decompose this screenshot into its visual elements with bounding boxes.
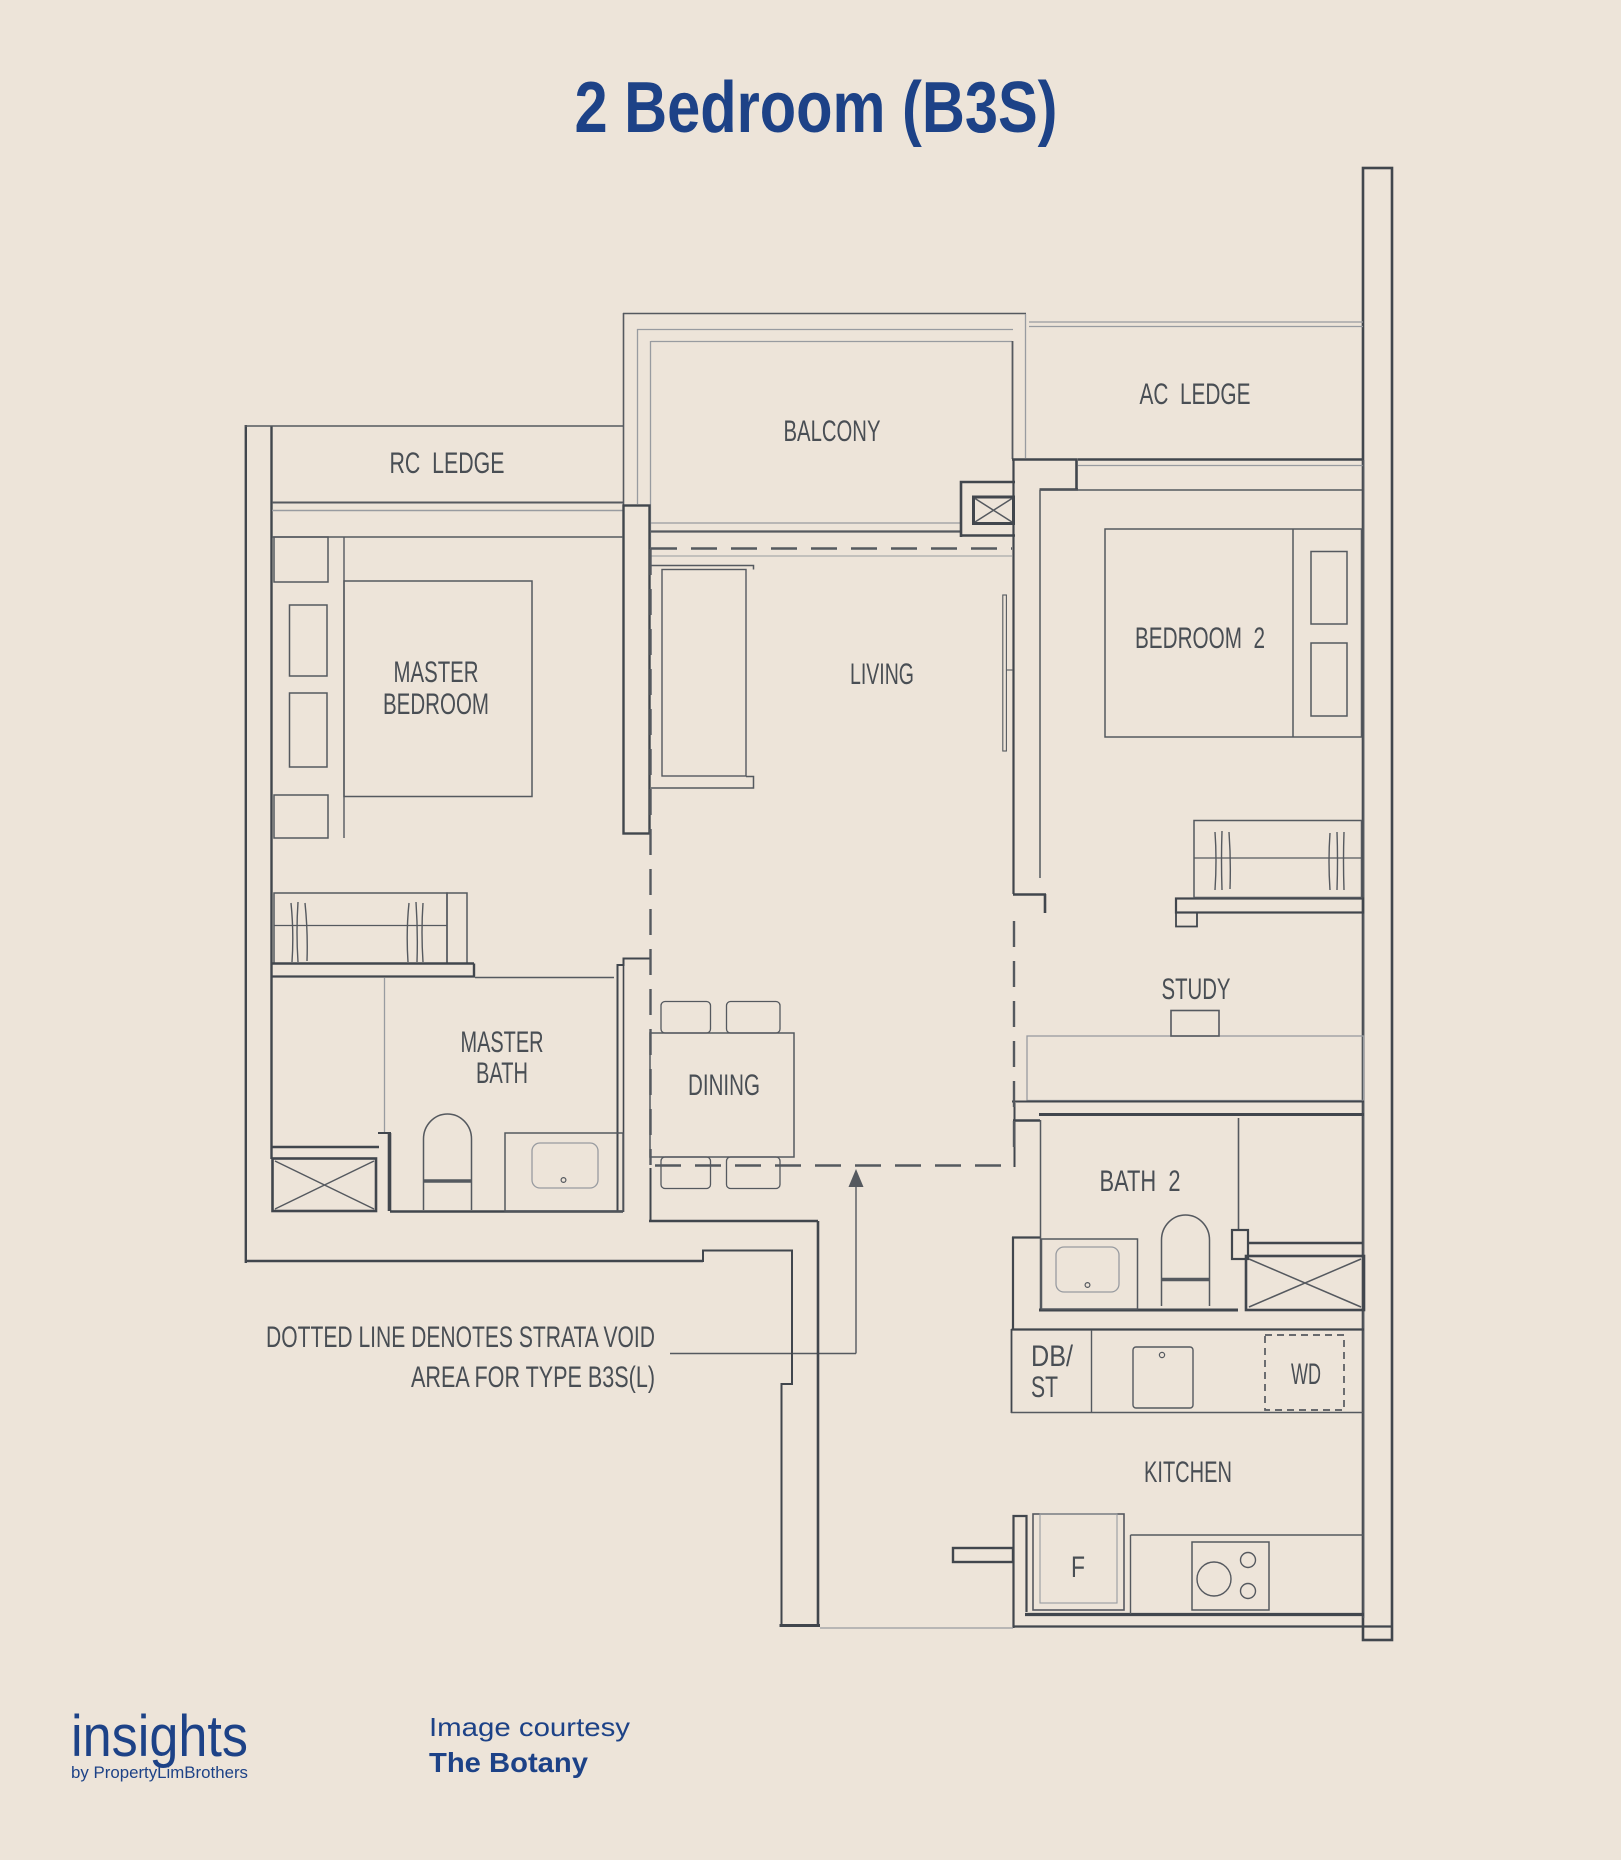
- svg-text:ST: ST: [1031, 1371, 1058, 1404]
- svg-text:by PropertyLimBrothers: by PropertyLimBrothers: [71, 1764, 248, 1782]
- svg-text:insights: insights: [71, 1704, 248, 1769]
- svg-text:Image courtesy: Image courtesy: [429, 1712, 630, 1742]
- svg-text:AC LEDGE: AC LEDGE: [1140, 378, 1251, 411]
- svg-text:BEDROOM 2: BEDROOM 2: [1135, 622, 1265, 655]
- svg-text:RC LEDGE: RC LEDGE: [390, 447, 505, 480]
- svg-text:MASTER: MASTER: [461, 1026, 544, 1059]
- svg-text:DB/: DB/: [1031, 1340, 1074, 1373]
- svg-text:DINING: DINING: [688, 1069, 760, 1102]
- svg-text:BALCONY: BALCONY: [784, 415, 881, 448]
- svg-text:2 Bedroom (B3S): 2 Bedroom (B3S): [575, 68, 1058, 148]
- svg-text:AREA FOR TYPE B3S(L): AREA FOR TYPE B3S(L): [411, 1361, 655, 1394]
- svg-text:BATH: BATH: [476, 1057, 528, 1090]
- svg-text:BATH 2: BATH 2: [1100, 1165, 1181, 1198]
- svg-text:STUDY: STUDY: [1162, 973, 1231, 1006]
- svg-text:DOTTED LINE DENOTES STRATA VOI: DOTTED LINE DENOTES STRATA VOID: [266, 1321, 655, 1354]
- svg-text:KITCHEN: KITCHEN: [1144, 1456, 1232, 1489]
- svg-text:MASTER: MASTER: [394, 656, 479, 689]
- svg-text:F: F: [1071, 1551, 1085, 1584]
- svg-text:WD: WD: [1291, 1358, 1321, 1391]
- svg-text:LIVING: LIVING: [850, 658, 914, 691]
- svg-text:The Botany: The Botany: [429, 1747, 588, 1778]
- svg-text:BEDROOM: BEDROOM: [383, 688, 489, 721]
